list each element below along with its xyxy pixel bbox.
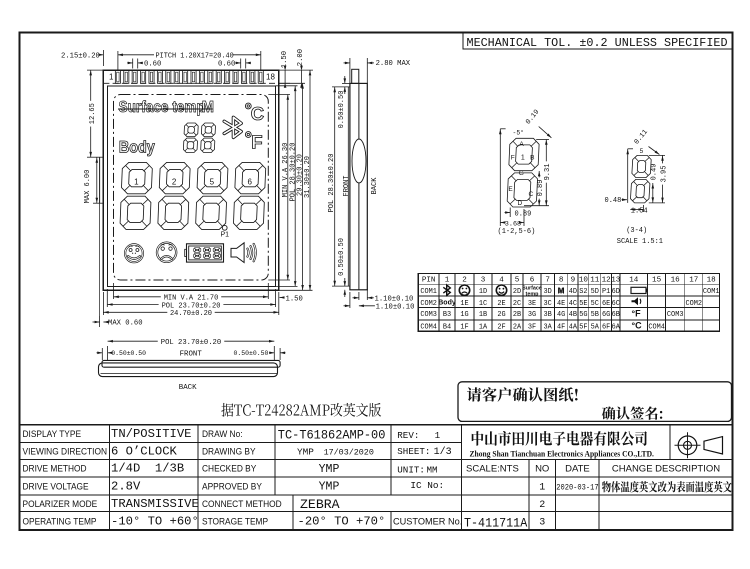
svg-text:MAX 0.60: MAX 0.60 <box>108 320 143 328</box>
svg-text:6 O’CLOCK: 6 O’CLOCK <box>111 445 178 459</box>
svg-text:6: 6 <box>530 277 535 285</box>
svg-text:17/03/2020: 17/03/2020 <box>324 448 374 458</box>
svg-text:YMP: YMP <box>297 447 314 458</box>
svg-text:PIN: PIN <box>422 277 436 285</box>
svg-text:1/4D 1/3B: 1/4D 1/3B <box>111 462 184 476</box>
svg-text:1C: 1C <box>479 300 487 308</box>
svg-text:0.60: 0.60 <box>218 60 235 68</box>
svg-text:TC-T61862AMP-00: TC-T61862AMP-00 <box>278 428 386 443</box>
svg-text:0.50±0.50: 0.50±0.50 <box>111 349 146 357</box>
svg-text:2C: 2C <box>513 300 521 308</box>
svg-text:T-411711A: T-411711A <box>464 516 528 530</box>
svg-text:5E: 5E <box>579 300 587 308</box>
svg-text:UNIT:: UNIT: <box>397 465 425 476</box>
svg-text:6E: 6E <box>602 300 610 308</box>
svg-text:M: M <box>202 99 214 116</box>
svg-text:7: 7 <box>545 277 550 285</box>
svg-text:COM1: COM1 <box>703 288 720 296</box>
svg-text:10: 10 <box>579 277 589 285</box>
svg-text:Surface temp: Surface temp <box>119 99 205 116</box>
svg-text:5G: 5G <box>579 311 587 319</box>
svg-text:DRIVE VOLTAGE: DRIVE VOLTAGE <box>23 481 89 491</box>
svg-text:M: M <box>557 286 564 296</box>
svg-text:6A: 6A <box>612 323 621 331</box>
svg-text:CHECKED BY: CHECKED BY <box>202 463 257 473</box>
svg-text:Zhong Shan Tianchuan Electroni: Zhong Shan Tianchuan Electronics Applian… <box>470 449 654 458</box>
svg-text:COM1: COM1 <box>420 288 437 296</box>
svg-text:POLARIZER MODE: POLARIZER MODE <box>23 499 98 509</box>
svg-text:0.50±0.50: 0.50±0.50 <box>338 91 346 129</box>
svg-text:2: 2 <box>539 500 545 511</box>
svg-text:8: 8 <box>559 277 564 285</box>
svg-text:1: 1 <box>134 178 139 187</box>
svg-text:DATE: DATE <box>565 464 590 475</box>
svg-text:1: 1 <box>435 430 441 441</box>
svg-text:6F: 6F <box>602 323 610 331</box>
svg-text:2G: 2G <box>497 311 505 319</box>
svg-text:0.60: 0.60 <box>144 60 161 68</box>
svg-text:3C: 3C <box>544 300 552 308</box>
svg-text:MAX 6.00: MAX 6.00 <box>84 170 92 204</box>
svg-text:3G: 3G <box>528 311 536 319</box>
svg-text:POL 23.70±0.20: POL 23.70±0.20 <box>162 302 221 310</box>
svg-text:SCALE 1.5:1: SCALE 1.5:1 <box>617 238 663 246</box>
svg-text:1: 1 <box>445 277 450 285</box>
svg-text:2020-03-17: 2020-03-17 <box>556 484 599 493</box>
svg-text:B3: B3 <box>443 311 451 319</box>
svg-text:G: G <box>519 170 524 177</box>
svg-text:POL 28.30±0.20: POL 28.30±0.20 <box>328 154 336 213</box>
svg-text:3D: 3D <box>544 288 552 296</box>
svg-text:24.70±0.20: 24.70±0.20 <box>170 310 212 318</box>
svg-text:2: 2 <box>172 178 177 187</box>
svg-text:-10° TO +60°: -10° TO +60° <box>111 514 199 528</box>
svg-text:3F: 3F <box>528 323 536 331</box>
svg-text:5F: 5F <box>579 323 587 331</box>
svg-text:1: 1 <box>109 73 114 82</box>
svg-text:2B: 2B <box>513 311 521 319</box>
svg-text:POL 23.70±0.20: POL 23.70±0.20 <box>161 339 221 347</box>
svg-text:B: B <box>530 155 534 162</box>
svg-text:1A: 1A <box>479 323 488 331</box>
svg-text:9.31: 9.31 <box>544 164 552 181</box>
svg-text:BACK: BACK <box>371 177 379 195</box>
svg-text:0.50±0.50: 0.50±0.50 <box>338 238 346 276</box>
svg-text:COM2: COM2 <box>420 300 437 308</box>
svg-text:5A: 5A <box>591 323 600 331</box>
svg-text:MECHANICAL TOL. ±0.2 UNLESS SP: MECHANICAL TOL. ±0.2 UNLESS SPECIFIED <box>467 36 728 50</box>
svg-text:Body: Body <box>119 138 155 156</box>
svg-text:4E: 4E <box>557 300 565 308</box>
svg-text:(1-2,5-6): (1-2,5-6) <box>498 228 536 236</box>
svg-text:9: 9 <box>571 277 576 285</box>
svg-text:COM4: COM4 <box>420 323 437 331</box>
svg-text:REV:: REV: <box>397 430 419 441</box>
svg-text:YMP: YMP <box>319 481 340 494</box>
svg-text:P1: P1 <box>221 231 230 238</box>
svg-text:11: 11 <box>590 277 600 285</box>
svg-text:°F: °F <box>632 309 642 319</box>
svg-text:E: E <box>508 186 513 193</box>
svg-text:2.8V: 2.8V <box>111 479 141 493</box>
svg-text:1: 1 <box>539 483 545 494</box>
svg-text:-20° TO +70°: -20° TO +70° <box>298 515 386 529</box>
svg-text:COM4: COM4 <box>648 323 665 331</box>
svg-text:FRONT: FRONT <box>180 350 203 358</box>
svg-text:3A: 3A <box>544 323 553 331</box>
svg-text:0.48: 0.48 <box>605 197 622 205</box>
svg-text:0.49: 0.49 <box>651 164 659 181</box>
svg-text:2E: 2E <box>497 300 505 308</box>
svg-text:3: 3 <box>539 518 545 529</box>
svg-text:BACK: BACK <box>179 384 197 392</box>
svg-text:5D: 5D <box>591 288 599 296</box>
svg-text:SCALE:NTS: SCALE:NTS <box>466 464 519 475</box>
svg-text:1.10±0.10: 1.10±0.10 <box>375 296 414 304</box>
svg-text:6C: 6C <box>612 300 620 308</box>
svg-text:1/3: 1/3 <box>434 446 452 458</box>
svg-text:NO: NO <box>535 464 549 475</box>
svg-text:IC No:: IC No: <box>410 480 444 491</box>
svg-text:1.10±0.10: 1.10±0.10 <box>376 304 415 312</box>
svg-text:S2: S2 <box>579 288 587 296</box>
svg-text:SHEET:: SHEET: <box>397 446 430 457</box>
svg-text:°C: °C <box>632 321 643 331</box>
svg-text:DRAW No:: DRAW No: <box>202 429 243 439</box>
svg-text:5: 5 <box>210 178 215 187</box>
svg-text:18: 18 <box>266 73 275 82</box>
svg-text:-5°: -5° <box>513 129 525 137</box>
svg-text:F: F <box>511 155 515 162</box>
svg-text:5: 5 <box>515 277 520 285</box>
svg-text:15: 15 <box>652 277 662 285</box>
svg-text:3: 3 <box>481 277 486 285</box>
svg-text:3E: 3E <box>528 300 536 308</box>
svg-text:1.50: 1.50 <box>286 295 303 303</box>
svg-text:12.65: 12.65 <box>89 103 97 124</box>
svg-text:COM2: COM2 <box>686 300 703 308</box>
svg-text:DRIVE METHOD: DRIVE METHOD <box>23 463 87 473</box>
svg-text:1B: 1B <box>479 311 487 319</box>
svg-text:P1: P1 <box>602 288 610 296</box>
svg-text:5: 5 <box>640 148 644 155</box>
svg-text:4G: 4G <box>557 311 565 319</box>
svg-text:A: A <box>519 141 524 148</box>
svg-text:temp: temp <box>526 291 540 297</box>
svg-text:4: 4 <box>499 277 504 285</box>
svg-text:ZEBRA: ZEBRA <box>300 497 340 512</box>
svg-text:1E: 1E <box>460 300 468 308</box>
svg-text:17: 17 <box>689 277 698 285</box>
svg-text:2D: 2D <box>513 288 521 296</box>
svg-text:FRONT: FRONT <box>343 175 351 196</box>
svg-text:0.89: 0.89 <box>515 211 532 219</box>
svg-text:2: 2 <box>462 277 467 285</box>
svg-text:COM3: COM3 <box>420 311 437 319</box>
svg-text:1F: 1F <box>460 323 468 331</box>
svg-text:4B: 4B <box>569 311 577 319</box>
svg-text:14: 14 <box>629 277 639 285</box>
svg-text:C: C <box>528 191 533 198</box>
svg-text:Body: Body <box>438 300 456 307</box>
svg-text:DISPLAY TYPE: DISPLAY TYPE <box>23 429 82 439</box>
svg-text:D: D <box>517 200 522 207</box>
svg-text:2.15±0.20: 2.15±0.20 <box>61 52 100 60</box>
svg-text:TRANSMISSIVE: TRANSMISSIVE <box>111 497 199 511</box>
svg-text:31.30±0.20: 31.30±0.20 <box>304 156 312 198</box>
svg-text:12: 12 <box>602 277 612 285</box>
svg-text:MM: MM <box>427 465 438 476</box>
svg-text:6G: 6G <box>602 311 610 319</box>
svg-text:CONNECT METHOD: CONNECT METHOD <box>202 499 282 509</box>
svg-text:16: 16 <box>671 277 681 285</box>
svg-text:4F: 4F <box>557 323 565 331</box>
svg-text:2F: 2F <box>497 323 505 331</box>
svg-text:6: 6 <box>247 178 252 187</box>
svg-text:1D: 1D <box>479 288 487 296</box>
svg-text:0.50±0.50: 0.50±0.50 <box>234 349 269 357</box>
svg-text:CHANGE DESCRIPTION: CHANGE DESCRIPTION <box>612 464 720 475</box>
svg-text:6D: 6D <box>612 288 620 296</box>
svg-text:(3-4): (3-4) <box>626 227 647 235</box>
svg-text:YMP: YMP <box>319 463 340 476</box>
svg-text:3.95: 3.95 <box>660 166 668 183</box>
svg-text:3B: 3B <box>544 311 552 319</box>
svg-text:1: 1 <box>521 155 525 162</box>
svg-text:0.89: 0.89 <box>537 180 545 197</box>
svg-text:5C: 5C <box>591 300 599 308</box>
svg-text:5B: 5B <box>591 311 599 319</box>
svg-text:F: F <box>251 131 262 152</box>
svg-text:2.00: 2.00 <box>297 49 305 66</box>
svg-text:APPROVED BY: APPROVED BY <box>202 481 262 491</box>
svg-text:C: C <box>251 103 264 124</box>
svg-text:4C: 4C <box>569 300 577 308</box>
svg-text:4A: 4A <box>569 323 578 331</box>
svg-text:COM3: COM3 <box>667 311 684 319</box>
svg-text:CUSTOMER No.: CUSTOMER No. <box>393 516 462 526</box>
svg-text:STORAGE TEMP: STORAGE TEMP <box>202 516 268 526</box>
svg-text:1.54: 1.54 <box>631 208 648 216</box>
svg-text:13: 13 <box>611 277 621 285</box>
svg-text:3.68: 3.68 <box>505 220 521 228</box>
svg-text:18: 18 <box>707 277 717 285</box>
svg-text:6B: 6B <box>612 311 620 319</box>
svg-text:4D: 4D <box>569 288 577 296</box>
svg-text:TN/POSITIVE: TN/POSITIVE <box>111 427 191 441</box>
svg-text:B4: B4 <box>443 323 451 331</box>
svg-text:OPERATING TEMP: OPERATING TEMP <box>23 516 97 526</box>
svg-text:2.80 MAX: 2.80 MAX <box>376 60 411 68</box>
svg-text:DRAWING BY: DRAWING BY <box>202 446 256 456</box>
svg-text:2A: 2A <box>513 323 522 331</box>
svg-text:1G: 1G <box>460 311 468 319</box>
svg-text:VIEWING DIRECTION: VIEWING DIRECTION <box>23 446 107 456</box>
